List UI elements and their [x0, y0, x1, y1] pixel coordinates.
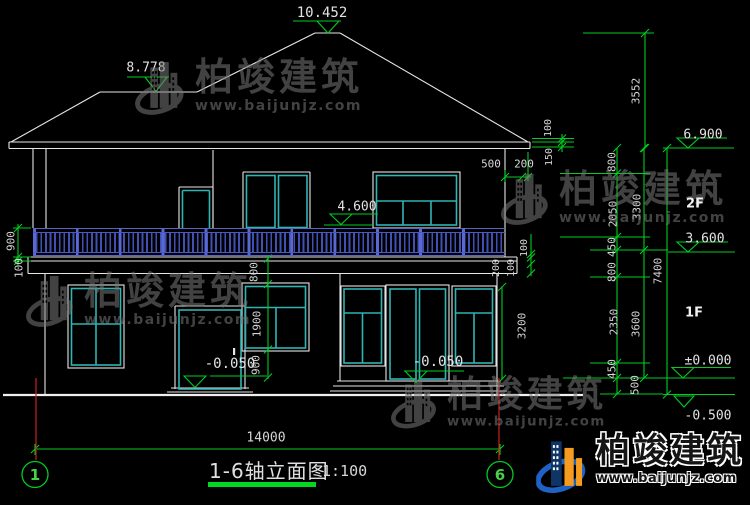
dim-window-height: 1900 [252, 311, 263, 338]
dim-eave-detail-upper: 100 [544, 119, 554, 137]
watermark-website: www.baijunjz.com [84, 312, 252, 328]
dim-storey-lower: 3600 [631, 311, 642, 338]
dim-chain-2350: 2350 [609, 309, 620, 336]
elevation-site-ground: -0.500 [685, 410, 732, 423]
watermark-building-icon [391, 376, 441, 433]
elevation-ground-floor: ±0.000 [685, 355, 732, 368]
watermark-building-icon [135, 58, 189, 120]
axis-number-right: 6 [495, 466, 505, 484]
elevation-drawing: 柏竣建筑 www.baijunjz.com 柏竣建筑 www.baijunjz.… [0, 0, 750, 505]
elevation-entry-left: -0.050 [205, 357, 256, 371]
company-logo: 柏竣建筑 www.baijunjz.com [536, 434, 744, 497]
watermark-website: www.baijunjz.com [195, 98, 363, 114]
dim-window-sill: 900 [251, 355, 262, 375]
drawing-scale: 1:100 [322, 462, 367, 480]
logo-company: 柏竣建筑 [596, 434, 744, 470]
balcony-railing [33, 228, 505, 256]
logo-website: www.baijunjz.com [596, 471, 744, 486]
watermark-website: www.baijunjz.com [447, 414, 607, 429]
watermark-top: 柏竣建筑 www.baijunjz.com [135, 58, 363, 120]
title-underline [208, 482, 316, 487]
dim-chain-800b: 800 [607, 262, 618, 282]
label-first-floor: 1F [685, 306, 703, 321]
label-second-floor: 2F [686, 197, 704, 212]
watermark-bottom: 柏竣建筑 www.baijunjz.com [391, 376, 615, 433]
dim-right-opening-height: 3200 [517, 313, 528, 340]
watermark-left: 柏竣建筑 www.baijunjz.com [26, 272, 252, 332]
elevation-balcony: 4.600 [337, 201, 376, 214]
logo-building-icon [536, 434, 592, 497]
dim-total-height: 7400 [653, 258, 664, 285]
elevation-second-floor: 3.600 [685, 233, 724, 246]
watermark-website: www.baijunjz.com [559, 210, 727, 226]
dim-chain-450a: 450 [607, 237, 618, 257]
watermark-building-icon [26, 272, 78, 332]
watermark-company: 柏竣建筑 [447, 376, 607, 412]
elevation-roof-peak: 10.452 [297, 6, 348, 20]
dim-eave-overhang: 500 [481, 159, 501, 170]
dim-slab-detail-b: 200 [492, 259, 502, 277]
dim-railing-height: 900 [6, 231, 17, 251]
door-handle [233, 348, 235, 355]
dim-eave-detail-lower: 150 [545, 148, 555, 166]
dim-slab-detail-c: 100 [507, 259, 517, 277]
dim-eave-overhang-outer: 200 [514, 159, 534, 170]
dim-roof-to-eave: 3552 [631, 78, 642, 105]
elevation-entry-right: -0.050 [413, 355, 464, 369]
dim-overall-width: 14000 [246, 432, 285, 445]
drawing-title: 1-6轴立面图 [209, 455, 329, 484]
watermark-building-icon [501, 170, 553, 230]
dim-balcony-slab: 100 [14, 258, 25, 278]
dim-slab-detail-a: 100 [520, 239, 530, 257]
watermark-company: 柏竣建筑 [84, 272, 252, 310]
axis-number-left: 1 [30, 466, 40, 484]
elevation-main-eave: 6.900 [683, 129, 722, 142]
dim-chain-500: 500 [630, 375, 641, 395]
watermark-company: 柏竣建筑 [195, 58, 363, 96]
